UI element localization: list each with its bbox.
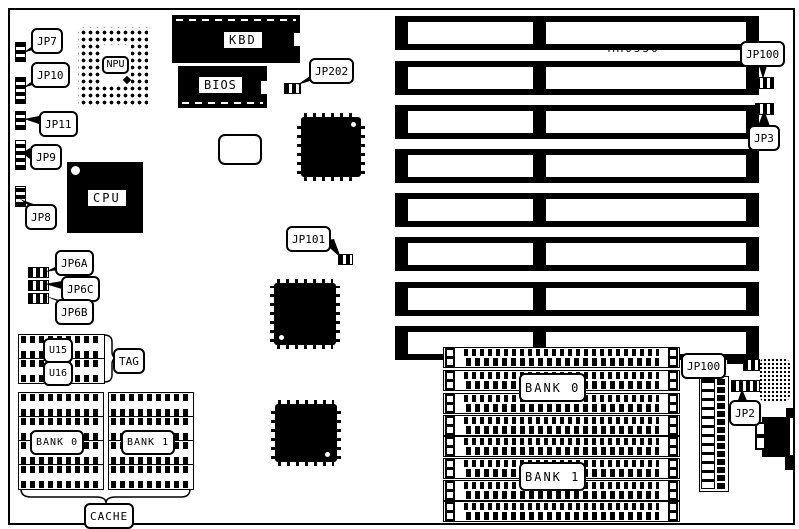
cache-label: CACHE [84,503,134,529]
simm-pin-row [464,349,659,366]
isa-slot-long-segment [533,61,759,95]
simm-latch-left [444,481,464,500]
connector-tab-2 [755,436,766,450]
kbd-notch [294,33,300,46]
cache-ram-chip [18,392,104,418]
qfp-chip-2 [270,279,340,349]
simm-socket-bank1 [443,501,680,522]
npu-socket: NPU [78,27,148,105]
cpu-label: CPU [88,190,126,206]
cache-bank1-label: BANK 1 [121,430,175,455]
isa-slot-short-segment [395,237,548,271]
qfp-chip-3 [271,400,341,466]
jp8-pins [15,186,26,207]
jumper-label-jp100-bottom: JP100 [681,353,726,379]
simm-latch-left [444,394,464,413]
cache-ram-chip [18,464,104,490]
simm-latch-right [659,481,679,500]
jumper-label-jp8: JP8 [25,204,57,230]
qfp1-pin1-dot [351,122,356,127]
memory-bank0-label: BANK 0 [519,373,586,402]
jp9-pins [15,140,26,170]
kbd-dashed-edge [176,19,296,21]
jumper-label-jp100-top: JP100 [740,41,785,67]
simm-latch-left [444,502,464,521]
qfp-leads-bottom [278,462,334,466]
jp202-pins [284,83,301,94]
simm-pin-row [464,417,659,434]
tag-chip-label-u16: U16 [43,361,73,386]
jp6a-pins [28,267,49,278]
qfp-chip-1 [297,113,365,181]
jumper-label-jp7: JP7 [31,28,63,54]
jumper-label-jp6b: JP6B [55,299,94,325]
qfp-leads-right [336,286,340,342]
simm-latch-left [444,348,464,367]
jumper-label-jp2: JP2 [729,400,761,426]
simm-latch-right [659,502,679,521]
jumper-label-jp9: JP9 [30,144,62,170]
isa-slot-short-segment [395,16,548,50]
jp11-pins [15,111,26,130]
npu-label: NPU [102,56,128,74]
simm-latch-left [444,371,464,390]
power-connector [762,417,790,457]
isa-slot-long-segment [533,149,759,183]
pin-header-connector [699,376,729,492]
header-holes [701,379,715,489]
simm-latch-right [659,416,679,435]
simm-latch-right [659,371,679,390]
jumper-label-jp202: JP202 [309,58,354,84]
qfp2-pin1-dot [279,335,284,340]
memory-bank1-label: BANK 1 [519,462,586,491]
simm-pin-row [464,503,659,520]
crystal-oscillator [218,134,262,165]
jp101-pins [338,254,353,265]
simm-latch-right [659,348,679,367]
cache-ram-chip [108,392,194,418]
cpu-pin1-dot [71,166,80,175]
simm-latch-right [659,459,679,478]
qfp-leads-right [361,120,365,174]
qfp-leads-bottom [277,345,333,349]
simm-socket-bank0 [443,347,680,368]
motherboard-diagram: NPU CPU KBD BIOS [0,0,799,529]
jp6b-pins [28,293,49,304]
qfp3-pin1-dot [325,452,330,457]
bios-notch [261,81,267,94]
isa-slot-short-segment [395,193,548,227]
isa-slot-short-segment [395,105,548,139]
board-model-text: MH0550 [608,42,660,55]
simm-socket-bank0 [443,415,680,436]
jumper-label-jp101: JP101 [286,226,331,252]
bios-dashed-edge [182,102,263,104]
kbd-label: KBD [224,32,262,48]
qfp-leads-right [337,407,341,459]
isa-slot-long-segment [533,237,759,271]
isa-slot-long-segment [533,105,759,139]
cache-ram-chip [108,464,194,490]
jp100-top-pins [755,77,774,89]
jumper-label-jp11: JP11 [39,111,78,137]
edge-step [786,408,793,418]
jumper-label-jp6a: JP6A [55,250,94,276]
header-pin-bar [717,379,725,489]
cache-bank0-label: BANK 0 [30,430,84,455]
simm-latch-right [659,394,679,413]
bios-label: BIOS [199,77,242,93]
isa-slot-short-segment [395,61,548,95]
tag-label: TAG [113,348,145,374]
jumper-label-jp3: JP3 [748,125,780,151]
qfp-leads-bottom [304,177,358,181]
simm-latch-left [444,416,464,435]
jumper-label-jp10: JP10 [31,62,70,88]
tag-chip-label-u15: U15 [43,338,73,363]
simm-latch-left [444,459,464,478]
jp10-pins [15,77,26,104]
jp2-pins [731,380,760,392]
simm-pin-row [464,438,659,455]
isa-slot-long-segment [533,193,759,227]
jp6c-pins [28,280,49,291]
isa-slot-short-segment [395,282,548,316]
simm-latch-right [659,437,679,456]
keyboard-connector [759,358,790,402]
isa-slot-long-segment [533,282,759,316]
power-connector-tail [785,455,794,470]
simm-latch-left [444,437,464,456]
jp7-pins [15,42,26,62]
jp3-pins [755,103,774,115]
isa-slot-short-segment [395,149,548,183]
jp100-bottom-pins [743,359,760,371]
simm-socket-bank1 [443,436,680,457]
